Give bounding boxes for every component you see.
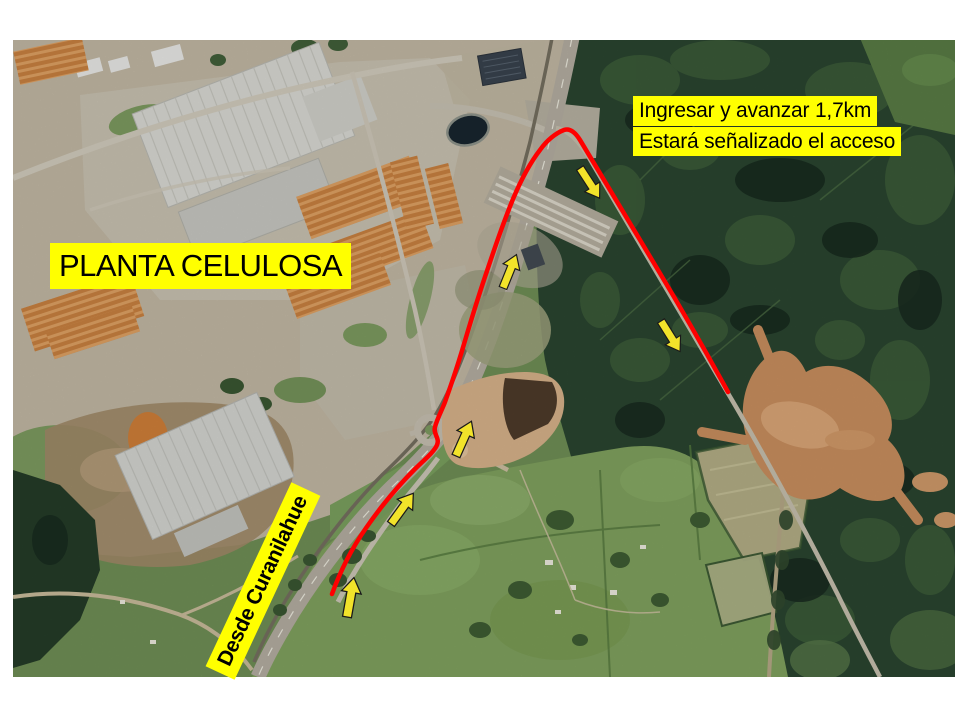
plant-label: PLANTA CELULOSA [50, 243, 351, 289]
instruction-line-2: Estará señalizado el acceso [633, 127, 901, 157]
instruction-line-1: Ingresar y avanzar 1,7km [633, 96, 877, 126]
instruction-box: Ingresar y avanzar 1,7km Estará señaliza… [633, 96, 901, 157]
satellite-map: PLANTA CELULOSA Ingresar y avanzar 1,7km… [0, 0, 960, 720]
slide: { "map": { "type": "satellite-route-map"… [0, 0, 960, 720]
